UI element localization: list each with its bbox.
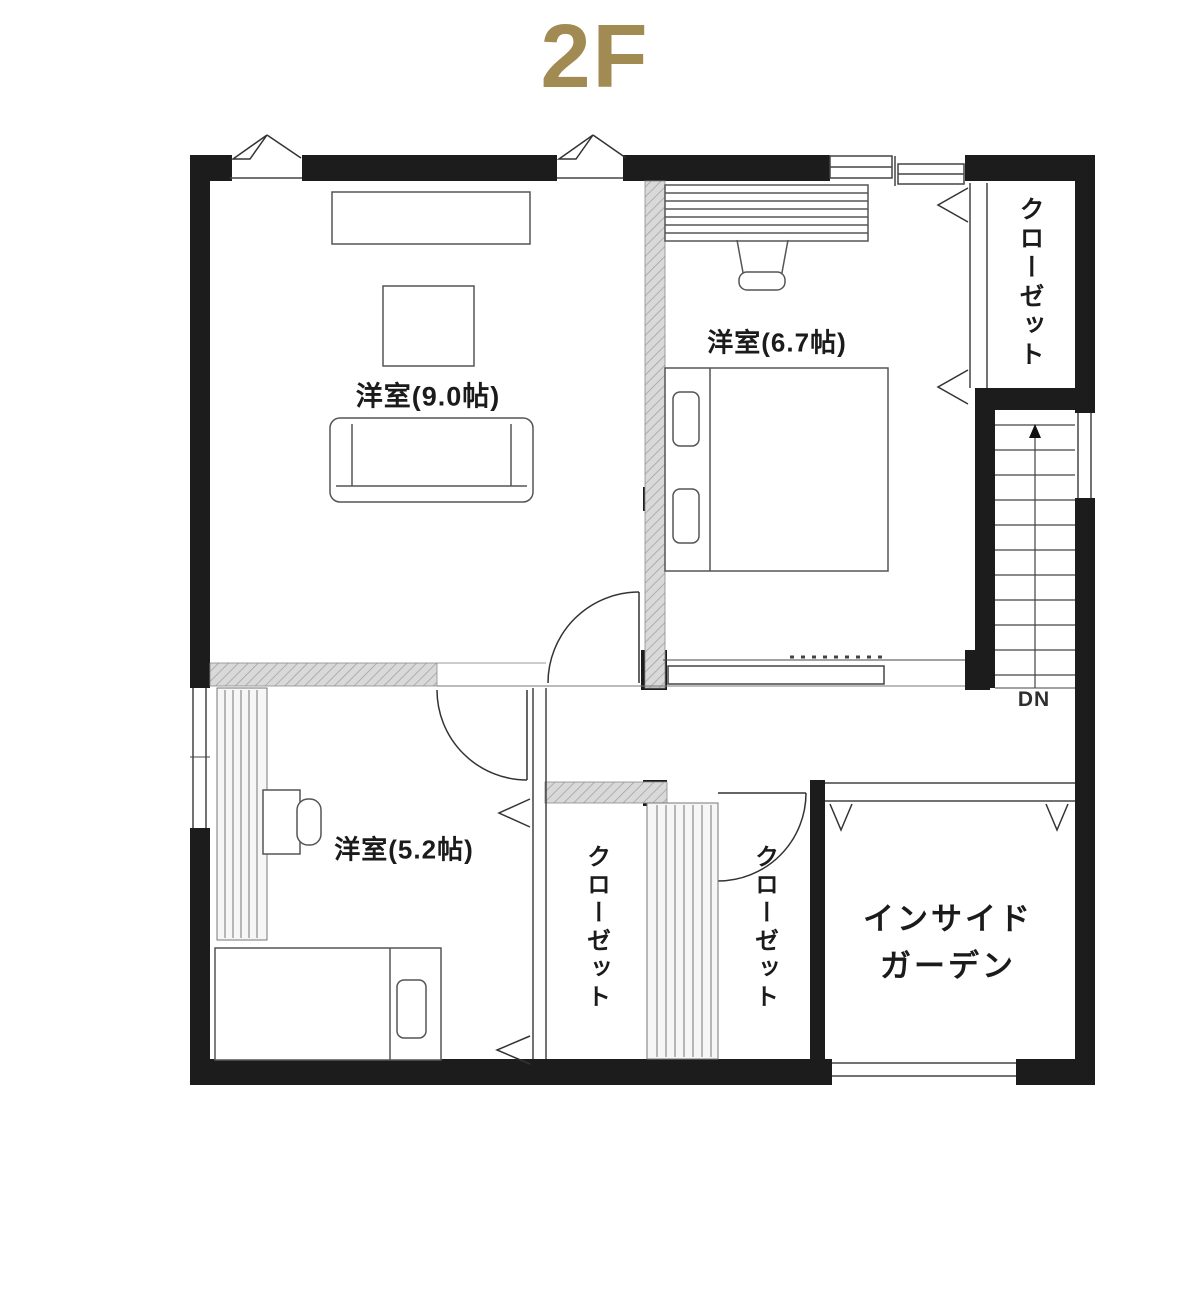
stair-direction-arrow (1029, 424, 1041, 438)
room-label-western-9: 洋室(9.0帖) (356, 375, 501, 414)
desk-room52 (263, 790, 300, 854)
casement-window-icon (557, 135, 626, 178)
closet-open-arrow (938, 188, 968, 222)
closet-open-arrow (499, 799, 530, 827)
closet-divider-unit (647, 803, 718, 1059)
room-label-western-6-7: 洋室(6.7帖) (707, 323, 846, 360)
door-arc-room9 (548, 592, 639, 683)
closet-label-upper: クローゼット (1012, 196, 1048, 370)
inside-garden-label-line1: インサイド (863, 897, 1033, 944)
bottom-window-icon (832, 1063, 1016, 1076)
inside-garden-label-line2: ガーデン (863, 943, 1033, 990)
garden-vent-mark (1046, 804, 1068, 830)
floor-plan-drawing (0, 0, 1200, 1300)
garden-left-wall (810, 780, 825, 1062)
side-window-icon (190, 688, 210, 828)
table (383, 286, 474, 366)
pillow (673, 392, 699, 446)
pillow (397, 980, 426, 1038)
staircase (995, 424, 1075, 688)
chair-room67 (737, 240, 788, 290)
desk-room67 (665, 185, 868, 241)
room-label-western-5-2: 洋室(5.2帖) (334, 830, 473, 867)
tv-board (332, 192, 530, 244)
floor-plan-page: 2F 洋室(9.0帖) 洋室(6.7帖) 洋室(5.2帖) クローゼット クロー… (0, 0, 1200, 1300)
closet-label-lower-left: クローゼット (579, 844, 614, 1012)
closet-bottom-wall (975, 388, 1095, 410)
inside-garden-label: インサイド ガーデン (863, 897, 1033, 990)
stairs-down-label: DN (1018, 688, 1050, 712)
pillow (673, 489, 699, 543)
sliding-window-icon (830, 156, 964, 186)
casement-window-icon (230, 135, 302, 178)
garden-top-partition (825, 783, 1075, 801)
partition-room9-room52 (210, 663, 437, 686)
door-arc-room52 (437, 690, 527, 780)
shelf-room52 (217, 688, 267, 940)
closet-open-arrow (938, 370, 968, 404)
sofa (330, 418, 533, 502)
closet-top-partition (545, 782, 667, 803)
chair-room52 (297, 799, 321, 845)
single-bed (215, 948, 441, 1060)
garden-vent-mark (830, 804, 852, 830)
stair-wall (975, 410, 995, 688)
closet-label-lower-right: クローゼット (747, 844, 782, 1012)
side-window-icon (1078, 413, 1091, 498)
floor-title: 2F (0, 6, 1190, 109)
sliding-door-room67 (663, 657, 965, 684)
furniture (215, 185, 888, 1060)
partition-room9-room67 (645, 181, 665, 688)
double-bed (665, 368, 888, 571)
